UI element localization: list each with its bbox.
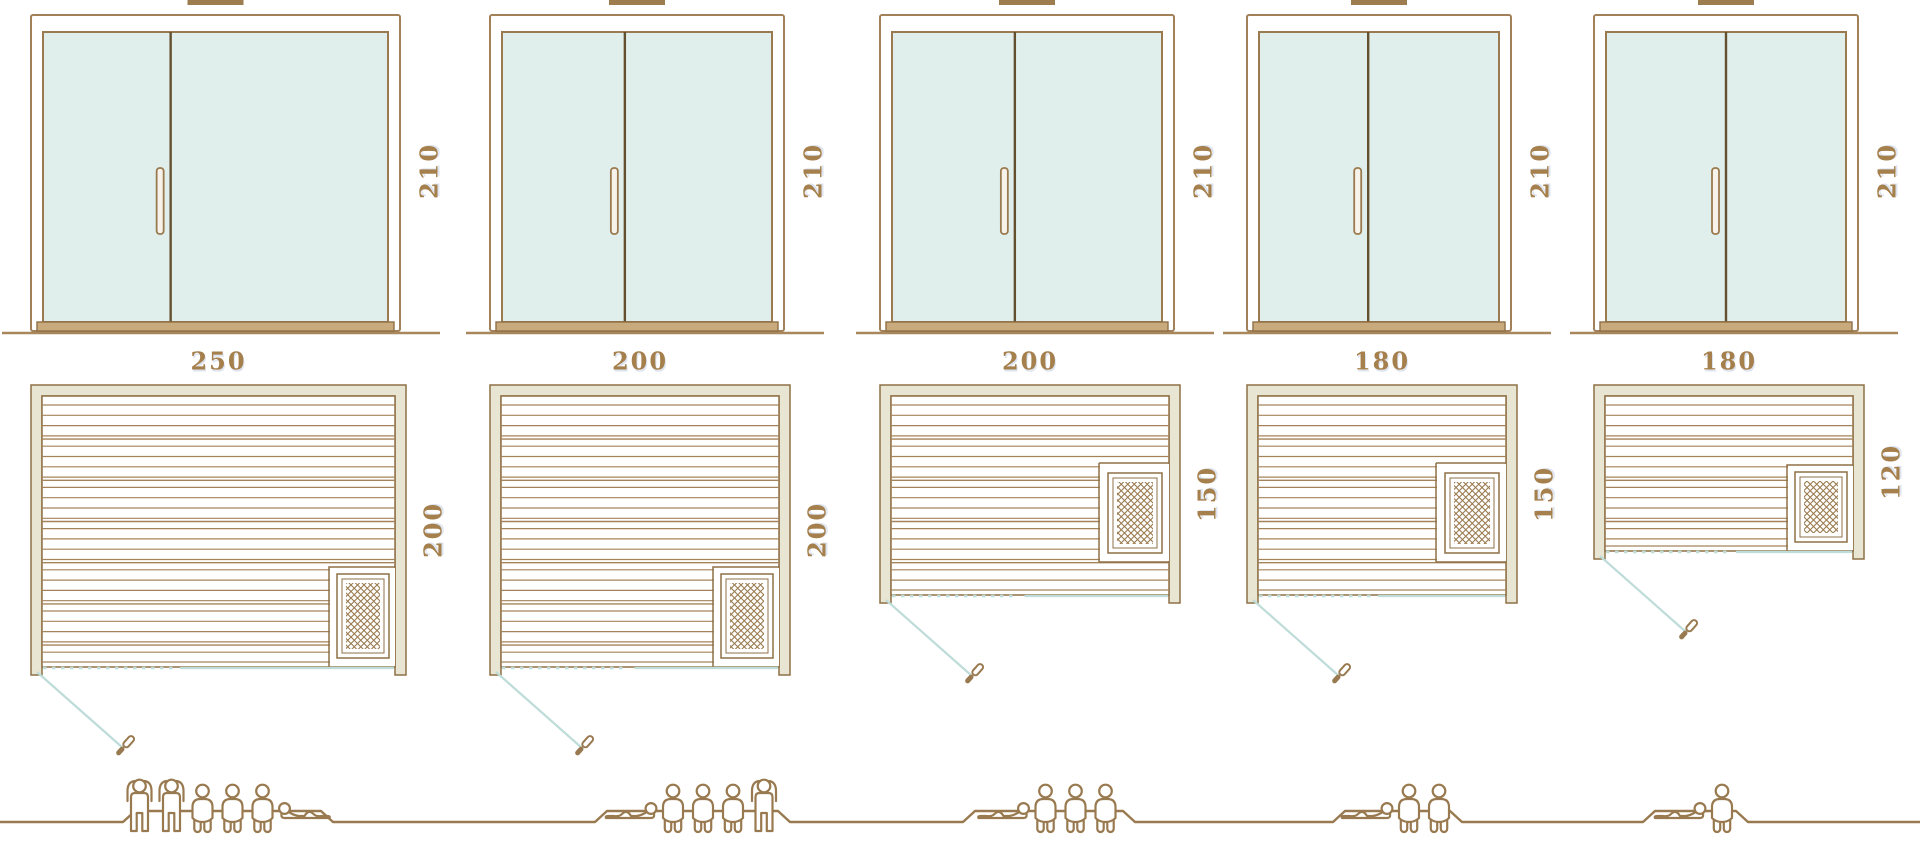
plan-width-label: 180 bbox=[1701, 347, 1757, 376]
door-height-label: 210 bbox=[1526, 143, 1555, 199]
plan-width-label: 200 bbox=[612, 347, 668, 376]
person-sitting-icon bbox=[723, 785, 743, 832]
door-sill bbox=[886, 322, 1168, 331]
capacity-group-unit-5 bbox=[1655, 785, 1732, 832]
plan-width-label: 250 bbox=[190, 347, 246, 376]
roof-vent-icon bbox=[1698, 0, 1754, 5]
glass-front bbox=[43, 32, 388, 322]
door-handle-icon bbox=[115, 735, 136, 757]
door-swing-line-icon bbox=[886, 596, 1168, 685]
door-swing-line-icon bbox=[37, 668, 394, 757]
capacity-group-unit-4 bbox=[1342, 785, 1449, 832]
door-swing-line-icon bbox=[1253, 596, 1505, 685]
person-sitting-icon bbox=[1712, 785, 1732, 832]
plan-width-label: 180 bbox=[1354, 347, 1410, 376]
roof-vent-icon bbox=[1351, 0, 1407, 5]
door-handle-icon bbox=[574, 735, 595, 757]
door-sill bbox=[1600, 322, 1852, 331]
door-sill bbox=[1253, 322, 1505, 331]
sauna-heater-crosshatch-icon bbox=[329, 567, 395, 667]
door-elevation-unit-2 bbox=[490, 0, 784, 331]
glass-front bbox=[892, 32, 1162, 322]
door-handle-icon bbox=[964, 663, 985, 685]
door-handle-icon bbox=[1331, 663, 1352, 685]
diagram-canvas bbox=[0, 0, 1920, 856]
door-handle-icon bbox=[1354, 168, 1361, 234]
plan-depth-label: 120 bbox=[1877, 444, 1906, 500]
door-elevation-unit-5 bbox=[1594, 0, 1858, 331]
person-sitting-icon bbox=[1066, 785, 1086, 832]
person-sitting-icon bbox=[193, 785, 213, 832]
capacity-group-unit-1 bbox=[128, 780, 330, 832]
floor-plan-unit-1 bbox=[31, 385, 406, 757]
door-handle-icon bbox=[1001, 168, 1008, 234]
plan-width-label: 200 bbox=[1002, 347, 1058, 376]
door-elevation-unit-1 bbox=[31, 0, 400, 331]
sauna-heater-crosshatch-icon bbox=[1436, 463, 1506, 562]
roof-vent-icon bbox=[999, 0, 1055, 5]
person-sitting-icon bbox=[1429, 785, 1449, 832]
person-sitting-icon bbox=[1036, 785, 1056, 832]
plan-depth-label: 150 bbox=[1193, 466, 1222, 522]
person-standing-icon bbox=[160, 780, 184, 831]
person-standing-icon bbox=[128, 780, 152, 831]
sauna-heater-crosshatch-icon bbox=[1099, 463, 1169, 562]
door-height-label: 210 bbox=[799, 143, 828, 199]
floor-plan-unit-3 bbox=[880, 385, 1180, 685]
floor-plan-unit-2 bbox=[490, 385, 790, 757]
capacity-group-unit-2 bbox=[606, 780, 776, 832]
door-handle-icon bbox=[1678, 619, 1699, 641]
plan-depth-label: 200 bbox=[803, 502, 832, 558]
person-sitting-icon bbox=[253, 785, 273, 832]
sauna-heater-crosshatch-icon bbox=[1787, 465, 1853, 551]
door-height-label: 210 bbox=[415, 143, 444, 199]
door-elevation-unit-3 bbox=[880, 0, 1174, 331]
door-elevation-unit-4 bbox=[1247, 0, 1511, 331]
door-handle-icon bbox=[1712, 168, 1719, 234]
door-handle-icon bbox=[157, 168, 164, 234]
plan-depth-label: 200 bbox=[419, 502, 448, 558]
glass-front bbox=[1259, 32, 1499, 322]
person-sitting-icon bbox=[693, 785, 713, 832]
door-handle-icon bbox=[611, 168, 618, 234]
capacity-group-unit-3 bbox=[978, 785, 1115, 832]
person-sitting-icon bbox=[1399, 785, 1419, 832]
roof-vent-icon bbox=[188, 0, 244, 5]
person-standing-icon bbox=[752, 780, 776, 831]
plan-depth-label: 150 bbox=[1530, 466, 1559, 522]
door-height-label: 210 bbox=[1189, 143, 1218, 199]
door-height-label: 210 bbox=[1873, 143, 1902, 199]
person-sitting-icon bbox=[223, 785, 243, 832]
roof-vent-icon bbox=[609, 0, 665, 5]
floor-plan-unit-4 bbox=[1247, 385, 1517, 685]
sauna-size-comparison-diagram: 250 200 210 200 200 210 200 150 210 180 … bbox=[0, 0, 1920, 856]
door-sill bbox=[496, 322, 778, 331]
door-swing-line-icon bbox=[1600, 552, 1852, 641]
person-sitting-icon bbox=[1096, 785, 1116, 832]
floor-plan-unit-5 bbox=[1594, 385, 1864, 641]
person-sitting-icon bbox=[663, 785, 683, 832]
door-swing-line-icon bbox=[496, 668, 778, 757]
door-sill bbox=[37, 322, 394, 331]
glass-front bbox=[502, 32, 772, 322]
sauna-heater-crosshatch-icon bbox=[713, 567, 779, 667]
